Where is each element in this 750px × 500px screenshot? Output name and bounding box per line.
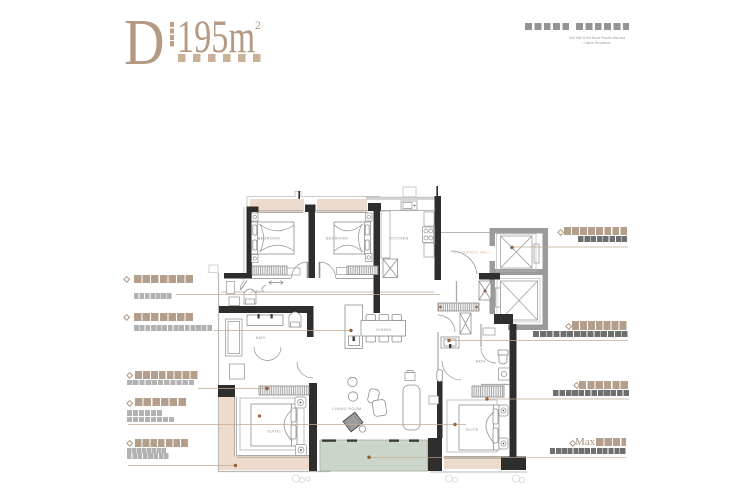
svg-text:BEDROOM: BEDROOM — [326, 237, 348, 241]
svg-text:SUITE: SUITE — [466, 428, 479, 432]
svg-text:SUITE: SUITE — [267, 430, 280, 434]
svg-text:One mile to the Bund Pioneer A: One mile to the Bund Pioneer Arts and — [569, 36, 625, 40]
svg-text:Culture Residence: Culture Residence — [583, 41, 610, 45]
svg-text:BEDROOM: BEDROOM — [258, 237, 280, 241]
svg-text:BATH: BATH — [476, 360, 486, 364]
svg-text:BATH: BATH — [256, 336, 266, 340]
svg-text:DINING: DINING — [376, 328, 391, 332]
svg-text:ENTRANCE HALL: ENTRANCE HALL — [454, 251, 491, 255]
svg-text:BATH: BATH — [251, 290, 261, 294]
svg-text:LIVING ROOM: LIVING ROOM — [332, 407, 361, 411]
svg-text:KITCHEN: KITCHEN — [389, 237, 408, 241]
